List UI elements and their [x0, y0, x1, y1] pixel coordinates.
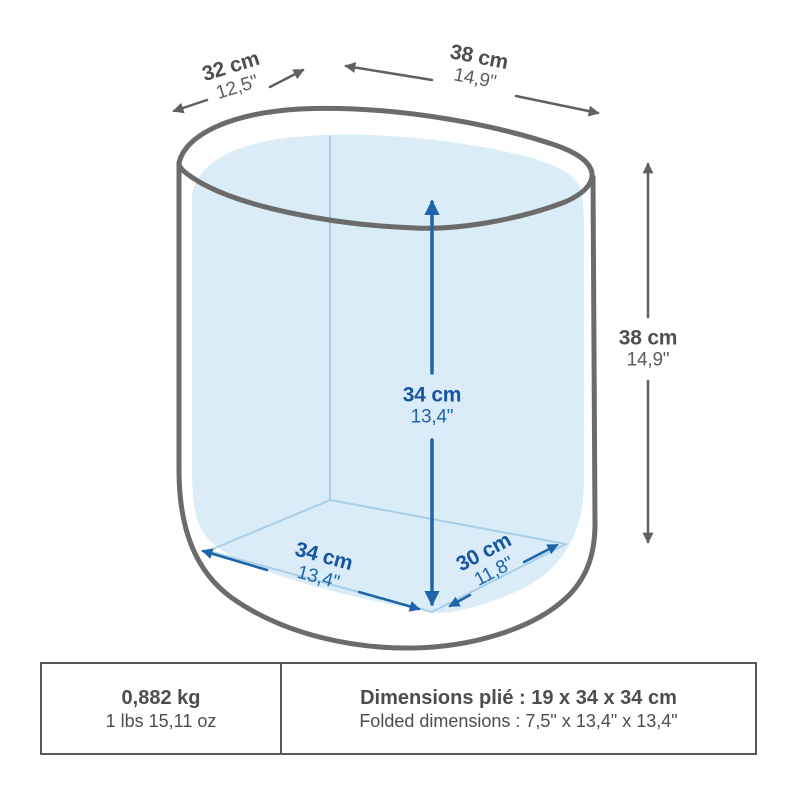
product-dimensions-diagram: 32 cm 12,5" 38 cm 14,9" 38 cm 14,9" 34 c… [0, 0, 800, 800]
weight-imperial-value: 1 lbs 15,11 oz [106, 710, 217, 732]
top-depth-arrow-left [174, 100, 207, 111]
spec-table: 0,882 kg 1 lbs 15,11 oz Dimensions plié … [40, 662, 757, 755]
inner-height-dimension-label: 34 cm 13,4" [403, 385, 462, 428]
inner-height-imperial-value: 13,4" [403, 407, 462, 428]
folded-dimensions-cell: Dimensions plié : 19 x 34 x 34 cm Folded… [282, 664, 755, 753]
outer-height-imperial-value: 14,9" [619, 350, 678, 371]
top-width-arrow-right [516, 96, 598, 113]
outer-height-dimension-label: 38 cm 14,9" [619, 328, 678, 371]
weight-metric-value: 0,882 kg [122, 686, 201, 710]
inner-height-metric-value: 34 cm [403, 385, 462, 407]
top-width-arrow-left [346, 66, 432, 80]
outer-height-metric-value: 38 cm [619, 328, 678, 350]
folded-dimensions-imperial-value: Folded dimensions : 7,5" x 13,4" x 13,4" [359, 710, 677, 732]
container-interior-fill [192, 135, 584, 613]
folded-dimensions-metric-value: Dimensions plié : 19 x 34 x 34 cm [360, 686, 677, 710]
top-depth-arrow-right [270, 70, 303, 87]
weight-cell: 0,882 kg 1 lbs 15,11 oz [42, 664, 282, 753]
